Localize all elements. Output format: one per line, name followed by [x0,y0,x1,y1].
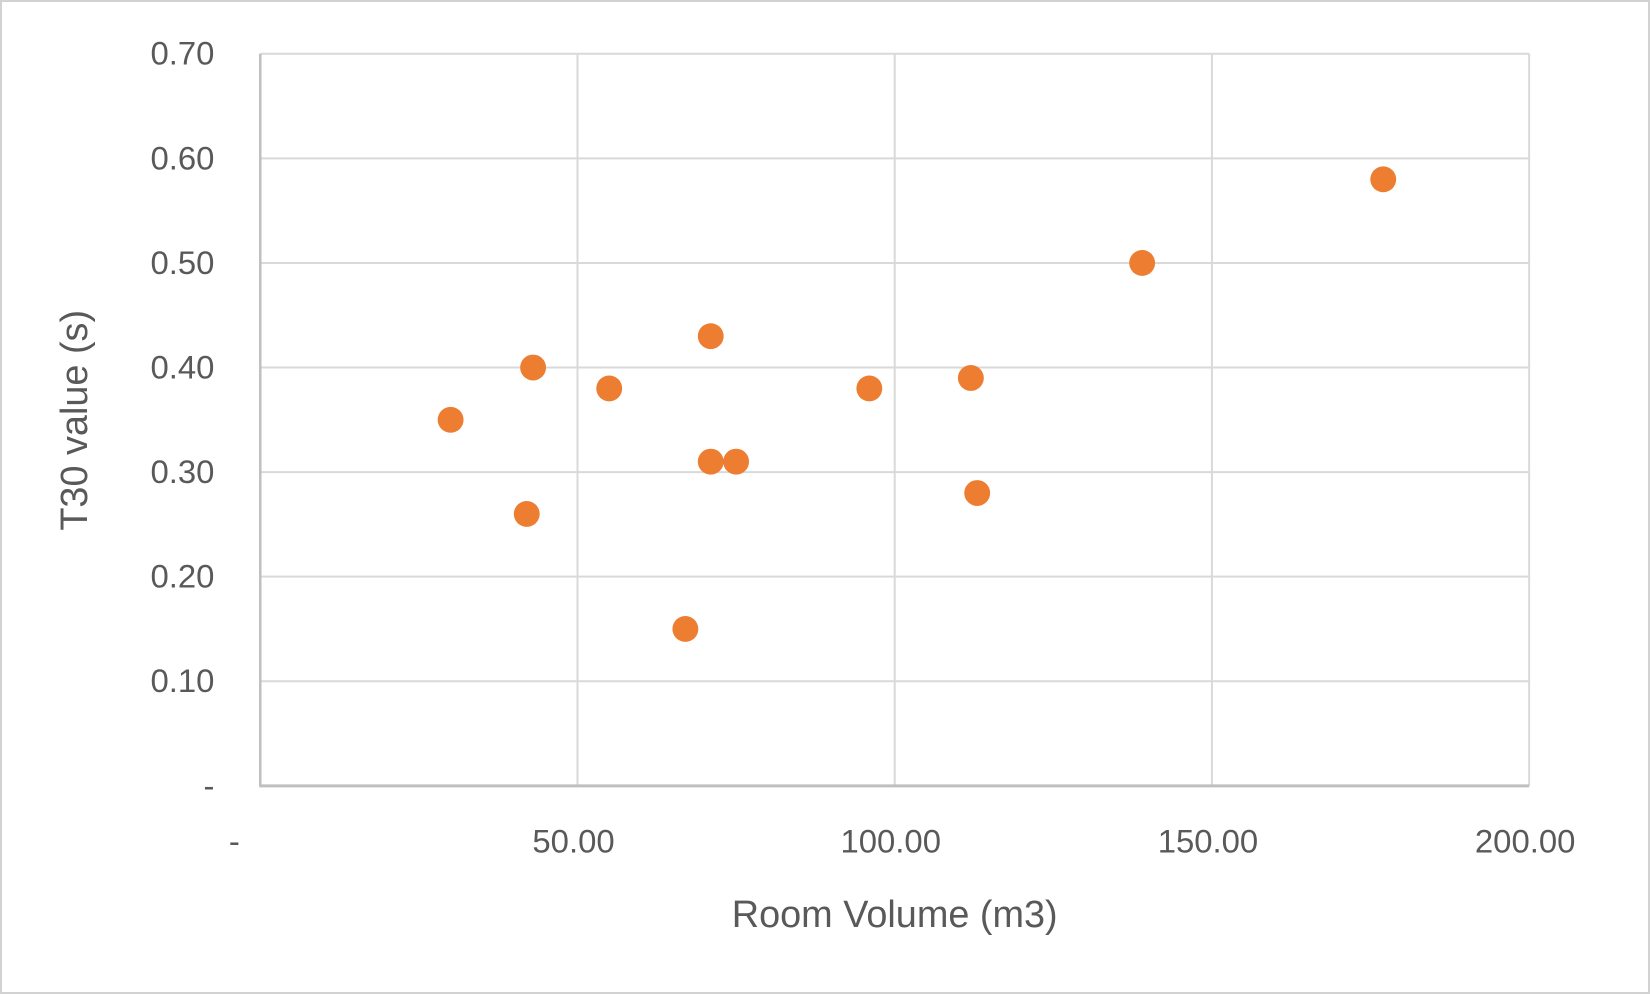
scatter-point [964,480,990,506]
scatter-plot: -0.100.200.300.400.500.600.70 -50.00100.… [2,2,1648,992]
scatter-point [520,355,546,381]
y-tick-label: 0.60 [150,139,214,176]
y-tick-label: 0.50 [150,244,214,281]
y-tick-label: 0.70 [150,35,214,72]
x-tick-label: 200.00 [1475,823,1576,860]
x-axis-title: Room Volume (m3) [732,894,1058,936]
scatter-point [514,501,540,527]
scatter-point [958,365,984,391]
y-tick-label: 0.30 [150,453,214,490]
scatter-point [698,449,724,475]
scatter-point [723,449,749,475]
chart-container: -0.100.200.300.400.500.600.70 -50.00100.… [0,0,1650,994]
data-points [438,166,1397,642]
x-tick-label: - [229,823,240,860]
x-tick-label: 100.00 [840,823,941,860]
scatter-point [698,323,724,349]
scatter-point [438,407,464,433]
x-tick-label: 50.00 [532,823,614,860]
scatter-point [1129,250,1155,276]
y-tick-label: 0.40 [150,348,214,385]
x-axis-tick-labels: -50.00100.00150.00200.00 [229,823,1576,860]
scatter-point [596,375,622,401]
y-axis-tick-labels: -0.100.200.300.400.500.600.70 [150,35,214,804]
scatter-point [672,616,698,642]
scatter-point [856,375,882,401]
y-tick-label: - [204,767,215,804]
y-tick-label: 0.10 [150,662,214,699]
y-axis-title: T30 value (s) [54,310,96,531]
y-tick-label: 0.20 [150,558,214,595]
x-tick-label: 150.00 [1158,823,1259,860]
scatter-point [1370,166,1396,192]
